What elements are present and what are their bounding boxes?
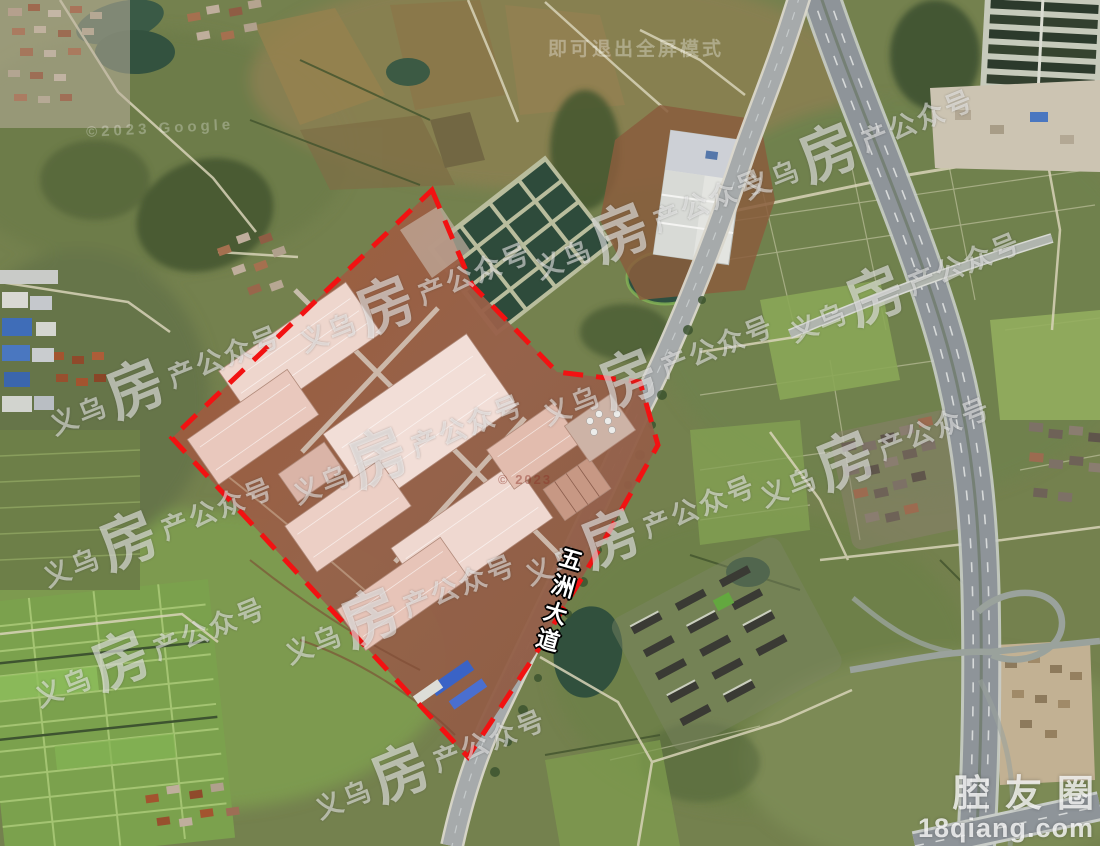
fullscreen-hint-text: 即可退出全屏模式 xyxy=(548,34,724,61)
village-top-left xyxy=(0,0,130,128)
forum-watermark: 腔友圈 18qiang.com xyxy=(918,775,1094,842)
forum-watermark-url: 18qiang.com xyxy=(918,815,1094,842)
satellite-map[interactable]: 义乌 房 产公众号 义乌 房 产公众号 义乌 房 产公众号 义乌 房 产公众号 … xyxy=(0,0,1100,846)
rice-paddy-grid xyxy=(0,579,235,846)
demolition-zone xyxy=(930,80,1100,172)
terrace-strips-left xyxy=(0,430,140,590)
imagery-copyright-center: © 2023 xyxy=(498,472,552,487)
forum-watermark-name: 腔友圈 xyxy=(918,775,1100,812)
